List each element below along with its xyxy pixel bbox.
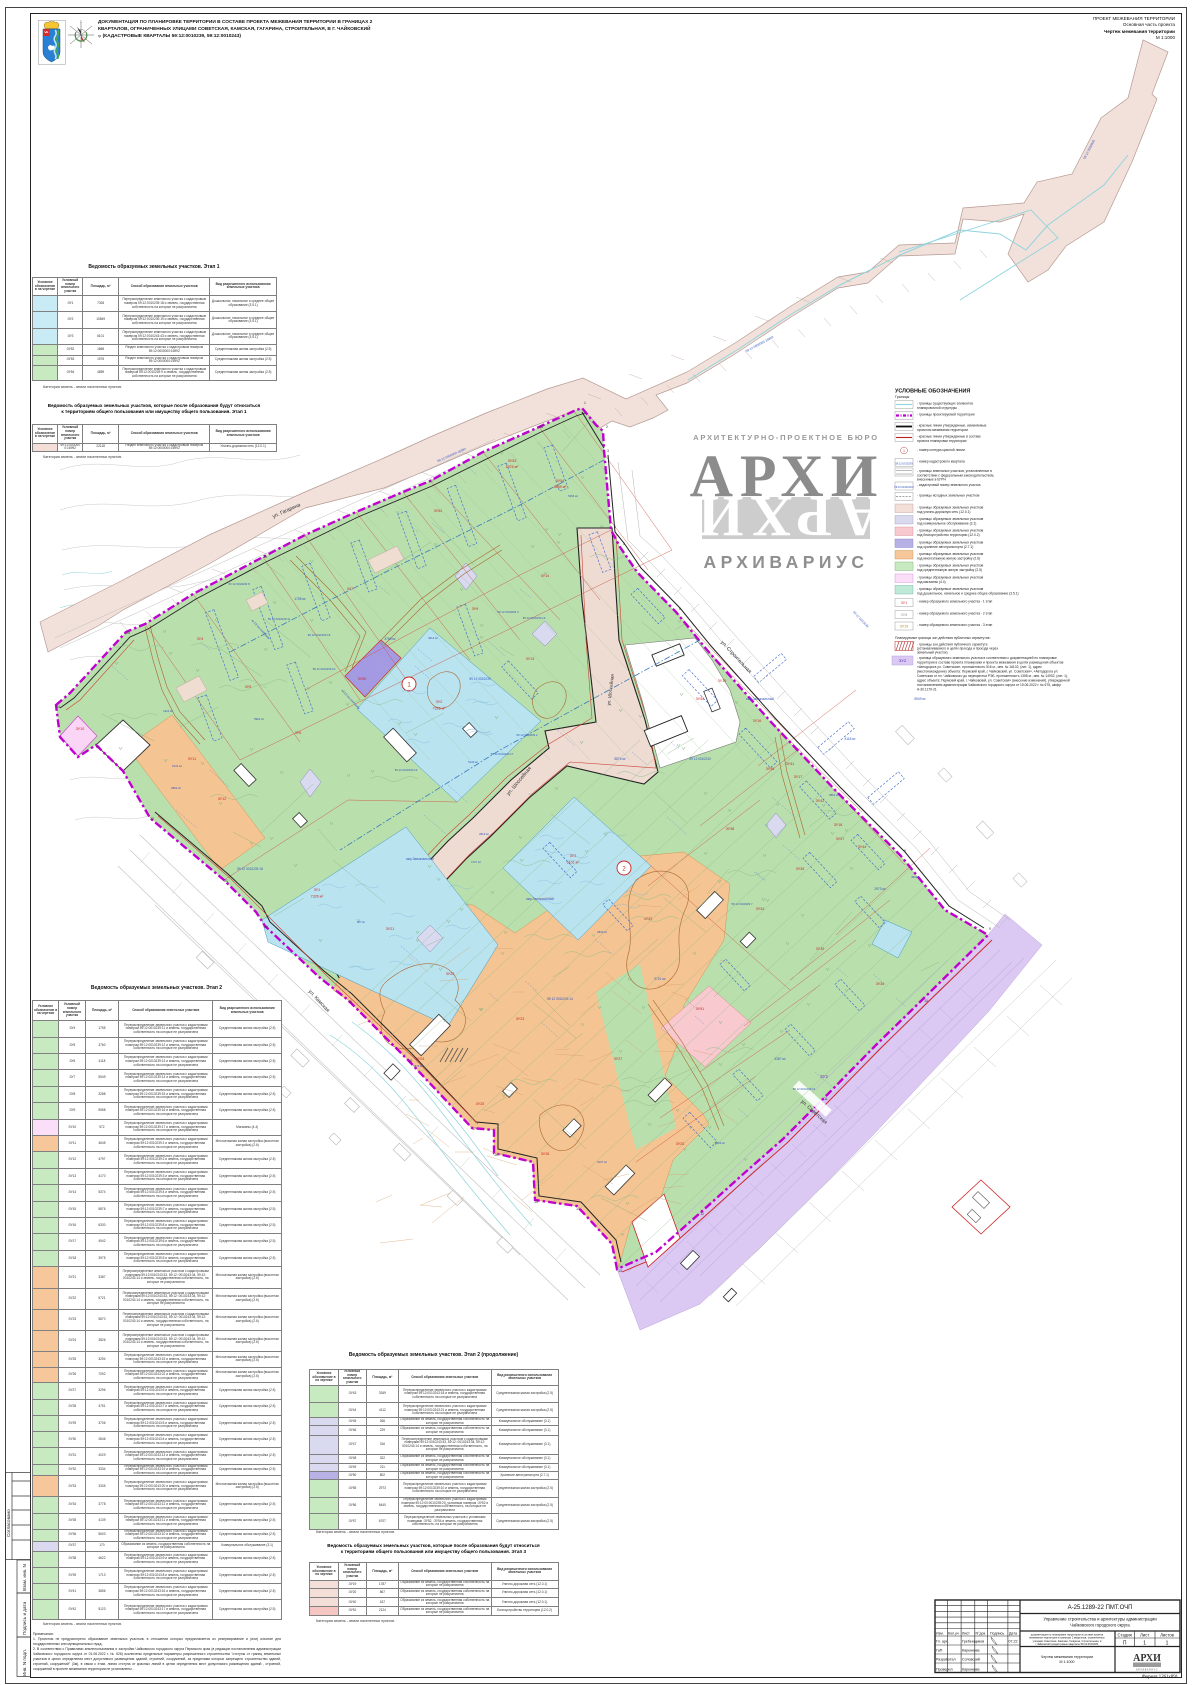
svg-text:земельный участок): земельный участок): [917, 651, 948, 655]
svg-text:Лист: Лист: [1140, 1633, 1149, 1638]
svg-text:планировочной структуры: планировочной структуры: [917, 406, 958, 410]
svg-text:под улично-дорожную сеть (12.0: под улично-дорожную сеть (12.0.1): [917, 510, 971, 514]
svg-text:59 12 0010239 1: 59 12 0010239 1: [848, 668, 869, 672]
svg-text:под многоэтажную жилую застрой: под многоэтажную жилую застройку (2.6): [917, 556, 980, 560]
svg-text:проекта планировки территории: проекта планировки территории: [917, 439, 967, 443]
svg-text:- границы проектируемой террит: - границы проектируемой территории: [917, 413, 975, 417]
svg-text:постановлением администрации: постановлением администрации Чайковского…: [917, 683, 1061, 687]
svg-text:ЗУ2: ЗУ2: [899, 658, 907, 663]
svg-text:- границы исходных земельных у: - границы исходных земельных участков: [917, 494, 980, 498]
svg-text:2840 м²: 2840 м²: [597, 930, 607, 934]
svg-text:59:12:0010239: 59:12:0010239: [895, 462, 913, 466]
svg-text:Гребенщиков: Гребенщиков: [962, 1640, 984, 1644]
svg-text:5254 м²: 5254 м²: [568, 494, 578, 498]
svg-text:С: С: [80, 21, 82, 24]
svg-text:Границы: Границы: [895, 395, 910, 399]
svg-text:907 м²: 907 м²: [357, 920, 365, 924]
svg-text:ЗУ8: ЗУ8: [901, 613, 907, 617]
svg-text:59 12 0010239 19: 59 12 0010239 19: [523, 616, 546, 620]
svg-text:59 12 0010239 11: 59 12 0010239 11: [268, 617, 291, 621]
svg-text:Листов: Листов: [1160, 1633, 1174, 1638]
svg-text:Соловский: Соловский: [962, 1658, 980, 1662]
svg-text:Каренкова: Каренкова: [962, 1668, 980, 1672]
svg-text:1: 1: [903, 449, 905, 453]
svg-text:ЗУ1: ЗУ1: [901, 601, 907, 605]
svg-text:проектом межевания территории: проектом межевания территории: [917, 428, 968, 432]
svg-text:«Автодорога ул. Советская»: «Автодорога ул. Советская», протяженност…: [917, 665, 1042, 669]
svg-text:5902 м²: 5902 м²: [254, 717, 264, 721]
svg-text:59 12 0010239 15: 59 12 0010239 15: [308, 633, 331, 637]
svg-text:Разработал: Разработал: [936, 1658, 956, 1662]
svg-text:г.Чайковский (кадастровые квар: г.Чайковский (кадастровые кварталы 59:12…: [1035, 1642, 1099, 1646]
svg-text:4642 м²: 4642 м²: [911, 875, 921, 879]
svg-text:- номер контура красной линии: - номер контура красной линии: [917, 448, 965, 452]
svg-text:4614 м²: 4614 м²: [428, 636, 438, 640]
svg-text:- номер образуемого земельного: - номер образуемого земельного участка -…: [917, 600, 993, 604]
svg-text:59 12 0010239 7: 59 12 0010239 7: [732, 902, 753, 906]
svg-text:07.22: 07.22: [1009, 1640, 1018, 1644]
svg-text:- номер образуемого земельного: - номер образуемого земельного участка -…: [917, 623, 993, 627]
svg-text:1: 1: [1166, 1641, 1169, 1647]
svg-text:А-25.1289-22 ПМТ.ОЧП: А-25.1289-22 ПМТ.ОЧП: [1068, 1605, 1133, 1611]
svg-text:Инв. N подл.: Инв. N подл.: [22, 1649, 27, 1676]
svg-text:под хранение автотранспорта (2: под хранение автотранспорта (2.7.1): [917, 545, 973, 549]
svg-text:Дата: Дата: [1009, 1631, 1017, 1635]
svg-text:Советская от пл. Чайковского д: Советская от пл. Чайковского до перекрес…: [917, 674, 1068, 678]
svg-text:59 12 0010239 8: 59 12 0010239 8: [229, 582, 250, 586]
svg-text:АРХИВАРИУС: АРХИВАРИУС: [1136, 1669, 1158, 1672]
svg-text:1: 1: [1143, 1641, 1146, 1647]
svg-text:- номер кадастрового квартала: - номер кадастрового квартала: [917, 460, 965, 464]
svg-text:6876 м²: 6876 м²: [413, 1064, 423, 1068]
svg-text:3919 м²: 3919 м²: [697, 456, 707, 460]
svg-text:П: П: [1123, 1641, 1127, 1647]
svg-text:под среднеэтажную жилую застро: под среднеэтажную жилую застройку (2.5): [917, 568, 982, 572]
svg-text:2819 м²: 2819 м²: [479, 832, 489, 836]
svg-text:АРХИ: АРХИ: [1133, 1653, 1161, 1664]
svg-text:59 12 0010239 16: 59 12 0010239 16: [806, 648, 829, 652]
svg-text:А-30.1179-21: А-30.1179-21: [917, 688, 937, 692]
svg-text:59 12 0010239 2: 59 12 0010239 2: [517, 733, 538, 737]
svg-text:1727 м²: 1727 м²: [471, 860, 481, 864]
svg-text:Каренкова: Каренкова: [962, 1649, 980, 1653]
svg-text:59 12 0010239 13: 59 12 0010239 13: [302, 999, 325, 1003]
svg-text:Управление строительства и арх: Управление строительства и архитектуры а…: [1043, 1617, 1157, 1622]
svg-text:59 12 0010239 4: 59 12 0010239 4: [498, 610, 519, 614]
svg-text:(местонахождение) объекта: П: (местонахождение) объекта: Пермский край…: [917, 669, 1058, 673]
svg-text:Проверил: Проверил: [936, 1668, 953, 1672]
svg-text:УСЛОВНЫЕ ОБОЗНАЧЕНИЯ: УСЛОВНЫЕ ОБОЗНАЧЕНИЯ: [895, 389, 970, 395]
svg-text:- граница образуемого земел: - граница образуемого земельного участка…: [917, 656, 1057, 660]
svg-text:3737 м²: 3737 м²: [705, 450, 715, 454]
svg-text:Чертеж межевания территории: Чертеж межевания территории: [1041, 1655, 1093, 1659]
svg-text:ГаП: ГаП: [936, 1649, 943, 1653]
svg-text:6116 м²: 6116 м²: [826, 627, 836, 631]
svg-text:59 12 0010239 14: 59 12 0010239 14: [793, 1087, 816, 1091]
svg-text:1037 м²: 1037 м²: [597, 1160, 607, 1164]
svg-text:1224 м²: 1224 м²: [163, 709, 173, 713]
svg-text:Стадия: Стадия: [1118, 1633, 1132, 1638]
svg-text:Лист: Лист: [962, 1631, 970, 1635]
svg-text:под магазины (4.4): под магазины (4.4): [917, 580, 946, 584]
svg-text:1635 м²: 1635 м²: [829, 632, 839, 636]
svg-text:Планируемые границы зон действ: Планируемые границы зон действия публичн…: [895, 636, 991, 640]
svg-text:Взам. инв. N: Взам. инв. N: [22, 1564, 27, 1591]
svg-text:Чайковского городского округа: Чайковского городского округа: [1070, 1623, 1130, 1628]
svg-text:59 12 0010239 3: 59 12 0010239 3: [286, 1231, 307, 1235]
svg-text:59 12 0010239 18: 59 12 0010239 18: [121, 816, 144, 820]
svg-text:М 1:1000: М 1:1000: [1060, 1660, 1075, 1664]
svg-text:6141 м²: 6141 м²: [172, 764, 182, 768]
svg-text:Изм.: Изм.: [936, 1631, 944, 1635]
svg-text:2892 м²: 2892 м²: [171, 786, 181, 790]
svg-text:- номер образуемого земельного: - номер образуемого земельного участка -…: [917, 612, 993, 616]
svg-text:59 12 0010239 17: 59 12 0010239 17: [491, 752, 514, 756]
svg-text:Подпись: Подпись: [990, 1631, 1004, 1635]
svg-text:территории в составе проекта п: территории в составе проекта планировки …: [917, 660, 1064, 664]
svg-text:5142 м²: 5142 м²: [468, 760, 478, 764]
svg-text:под дошкольное, начальное и ср: под дошкольное, начальное и среднее обще…: [917, 591, 1019, 595]
svg-text:внесенные в ЕГРН: внесенные в ЕГРН: [917, 477, 946, 481]
svg-text:5501 м²: 5501 м²: [743, 648, 753, 652]
svg-text:59 12 0010239 12: 59 12 0010239 12: [395, 768, 418, 772]
svg-text:Гл. арх.: Гл. арх.: [936, 1640, 949, 1644]
svg-text:Согласовано: Согласовано: [6, 1509, 11, 1537]
svg-text:Кол.уч: Кол.уч: [948, 1631, 959, 1635]
svg-text:59:12:0010239:8: 59:12:0010239:8: [894, 485, 914, 489]
svg-text:6861 м²: 6861 м²: [829, 793, 839, 797]
svg-text:6456 м²: 6456 м²: [715, 1141, 725, 1145]
svg-text:под коммунальное обслуживание: под коммунальное обслуживание (3.1): [917, 521, 976, 525]
svg-text:Подпись и дата: Подпись и дата: [22, 1602, 27, 1635]
svg-text:адрес объекта: Пермский край,: адрес объекта: Пермский край, г. Чайковс…: [917, 679, 1070, 683]
svg-text:ЗУ19: ЗУ19: [900, 625, 908, 629]
svg-text:59 12 0010239 10: 59 12 0010239 10: [313, 667, 336, 671]
svg-text:под благоустройство территории: под благоустройство территории (12.0.2): [917, 533, 980, 537]
svg-text:- кадастровый номер земельного: - кадастровый номер земельного участка: [917, 483, 981, 487]
svg-text:N°док: N°док: [976, 1631, 986, 1635]
